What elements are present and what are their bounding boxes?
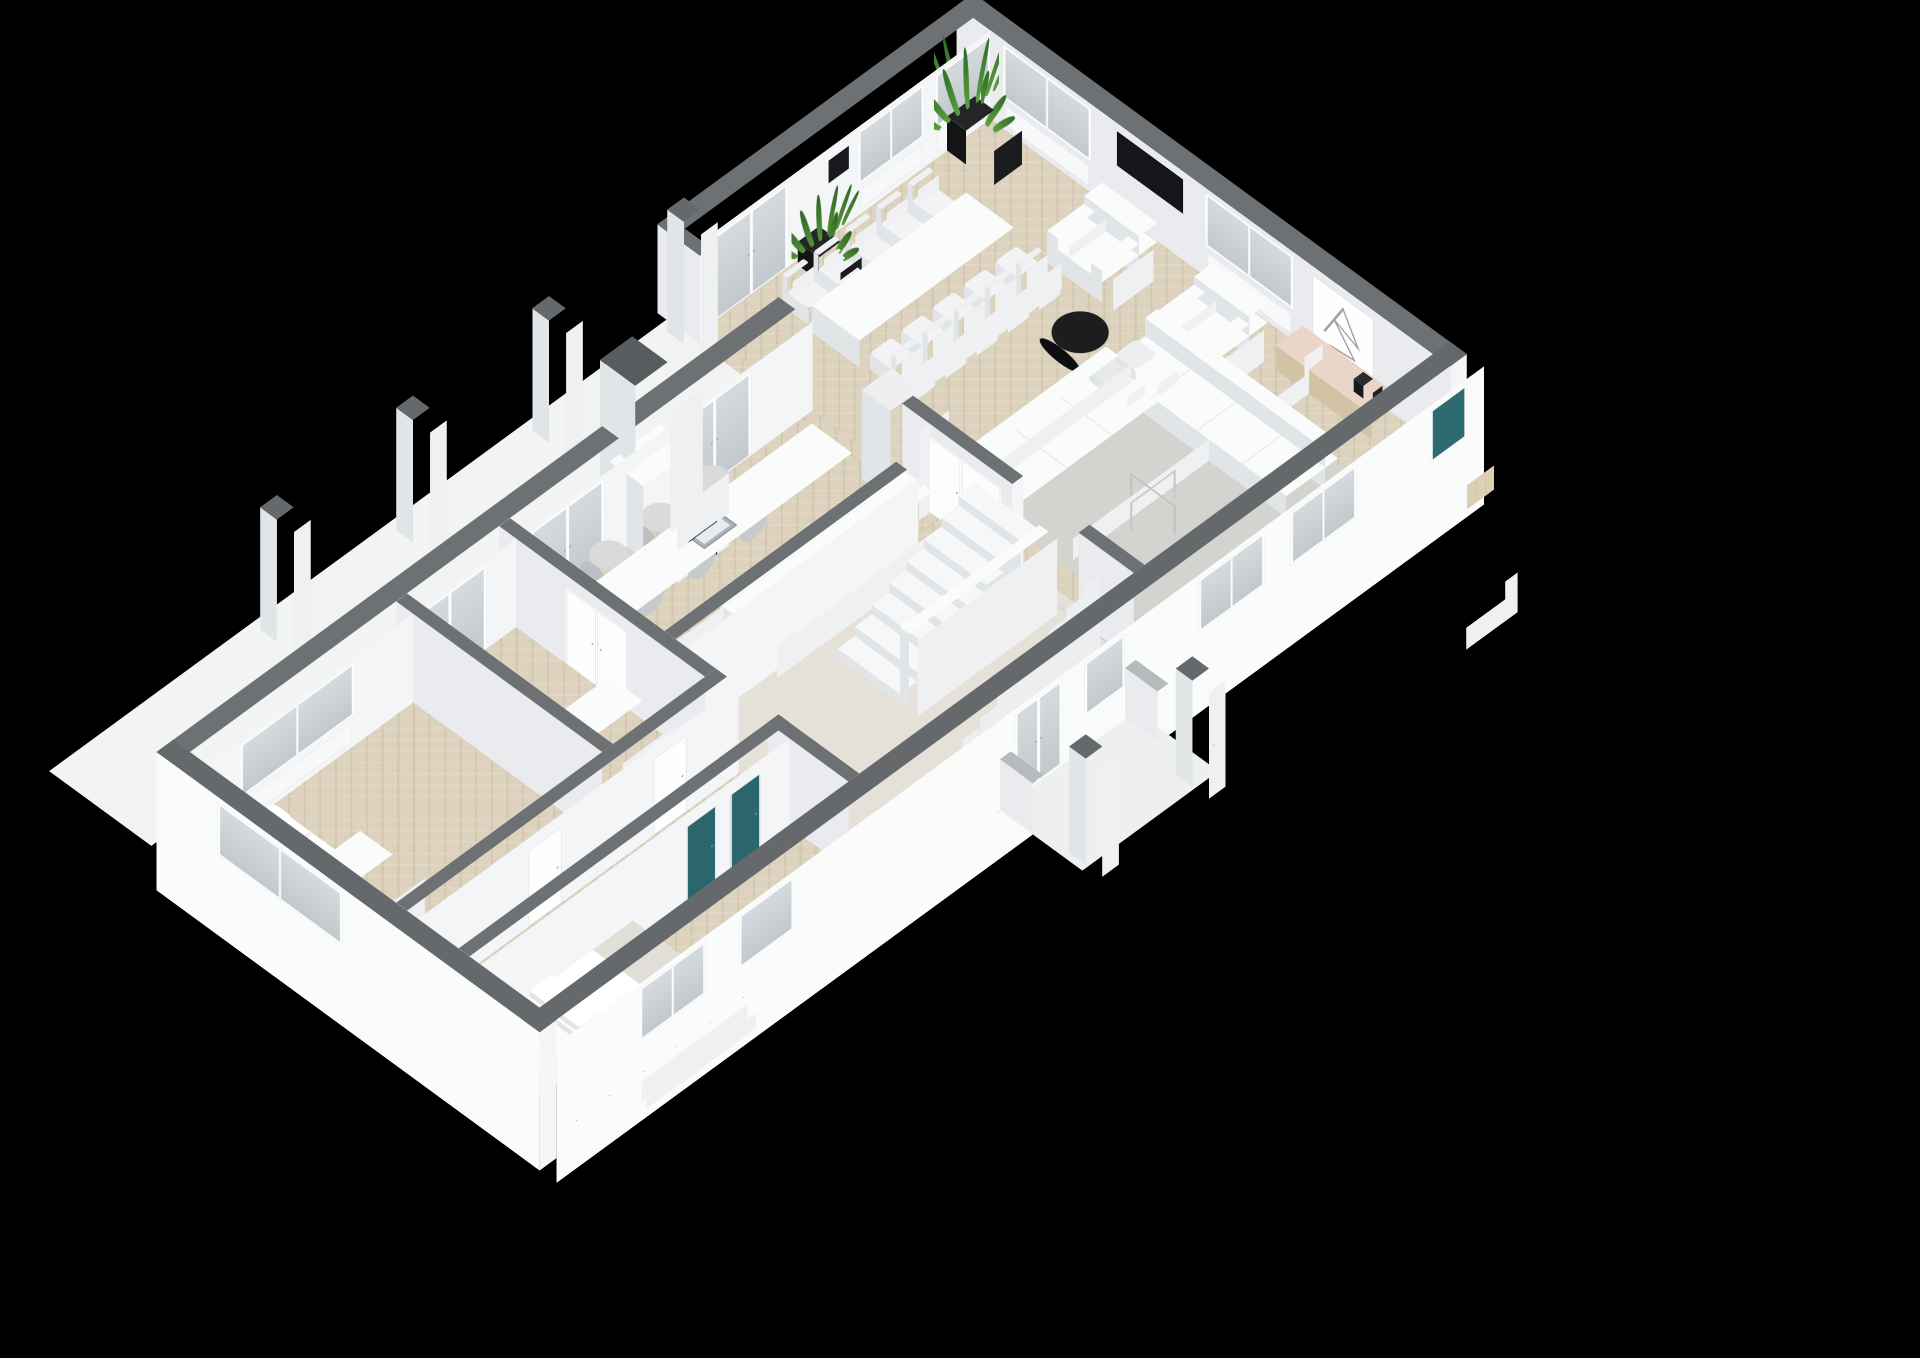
floorplan-viewport [0,0,1920,1358]
